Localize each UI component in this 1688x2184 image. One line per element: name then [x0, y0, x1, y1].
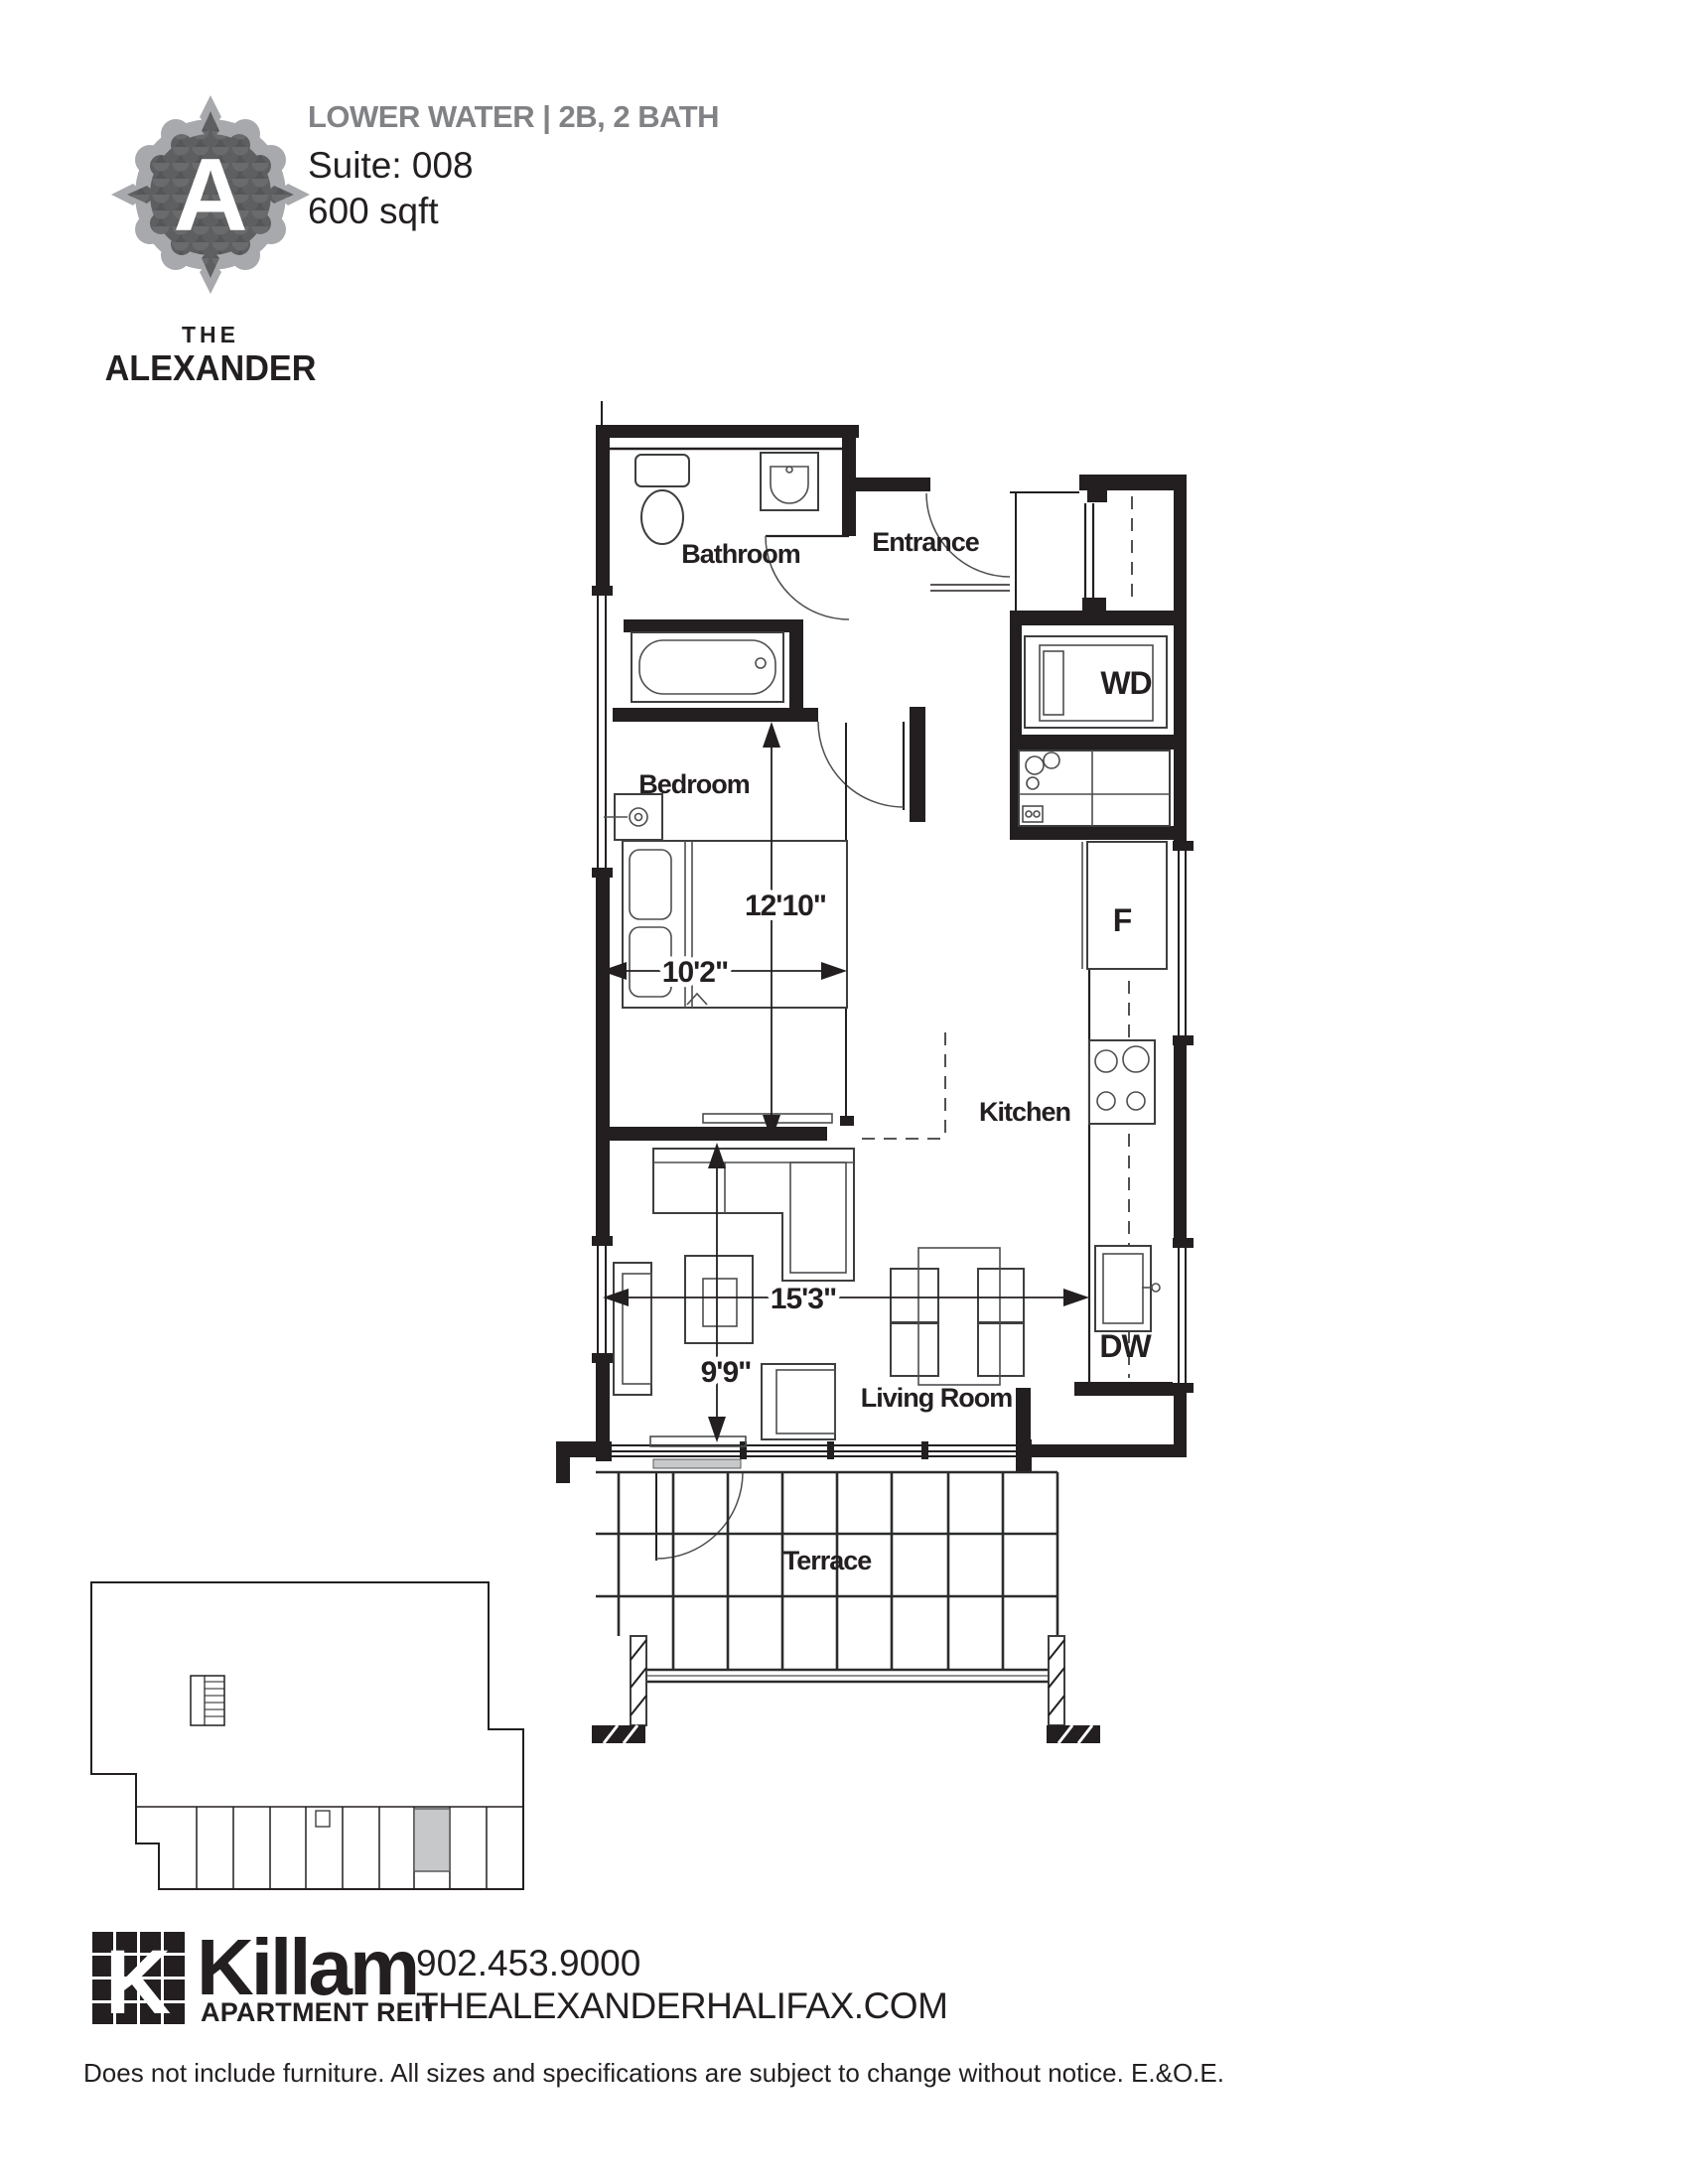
brand-alexander-label: ALEXANDER — [97, 347, 324, 389]
stair-core — [191, 1676, 224, 1725]
brand-the-label: THE — [111, 322, 310, 348]
room-label-terrace: Terrace — [783, 1546, 873, 1575]
appliance-label-dw: DW — [1099, 1328, 1152, 1364]
killam-logo: K — [92, 1932, 185, 2033]
disclaimer-text: Does not include furniture. All sizes an… — [83, 2058, 1224, 2089]
room-label-kitchen: Kitchen — [979, 1097, 1070, 1127]
killam-subtitle: APARTMENT REIT — [201, 1997, 438, 2028]
plan-title: LOWER WATER | 2B, 2 BATH — [308, 99, 719, 135]
room-label-bedroom: Bedroom — [638, 769, 750, 799]
website-url: THEALEXANDERHALIFAX.COM — [416, 1985, 947, 2027]
room-label-living-room: Living Room — [861, 1383, 1013, 1413]
ottoman — [762, 1364, 835, 1439]
appliance-label-wd: WD — [1100, 665, 1151, 701]
dim-living-width: 9'9" — [701, 1356, 752, 1389]
suite-number: Suite: 008 — [308, 145, 474, 187]
bathroom-sink — [761, 453, 818, 510]
badge-letter: A — [173, 138, 247, 253]
accent-chair — [614, 1263, 651, 1395]
patio-wall — [596, 1436, 1032, 1561]
terrace-post — [631, 1636, 646, 1725]
bedroom-door-swing — [818, 722, 904, 807]
phone-number: 902.453.9000 — [416, 1943, 640, 1984]
patio-sliding-door — [653, 1459, 741, 1468]
bed — [623, 841, 847, 1008]
patio-door-swing — [656, 1472, 743, 1559]
dining-chair — [891, 1323, 938, 1376]
alexander-badge-logo: A — [111, 95, 310, 294]
appliance-label-fridge: F — [1113, 902, 1132, 938]
suite-area: 600 sqft — [308, 191, 439, 232]
killam-wordmark: Killam — [197, 1928, 417, 2007]
killam-logo-letter: K — [105, 1932, 171, 2033]
utility-closet — [1019, 751, 1170, 826]
room-label-bathroom: Bathroom — [681, 539, 800, 569]
dining-chair — [891, 1269, 938, 1322]
dim-bedroom-width: 10'2" — [662, 956, 728, 989]
dim-bedroom-length: 12'10" — [745, 889, 826, 922]
floorplan-drawing: Bathroom Entrance Bedroom Kitchen Living… — [556, 401, 1194, 1743]
room-label-entrance: Entrance — [872, 527, 980, 557]
toilet-bowl — [641, 490, 683, 544]
highlighted-suite-unit — [414, 1809, 450, 1871]
coffee-table — [685, 1256, 753, 1343]
terrace-deck — [592, 1472, 1100, 1743]
terrace-post — [1049, 1636, 1064, 1725]
dining-chair — [978, 1323, 1024, 1376]
site-key-plan — [91, 1582, 523, 1889]
dining-chair — [978, 1269, 1024, 1322]
toilet-tank — [635, 455, 689, 486]
dim-living-length: 15'3" — [771, 1283, 836, 1315]
